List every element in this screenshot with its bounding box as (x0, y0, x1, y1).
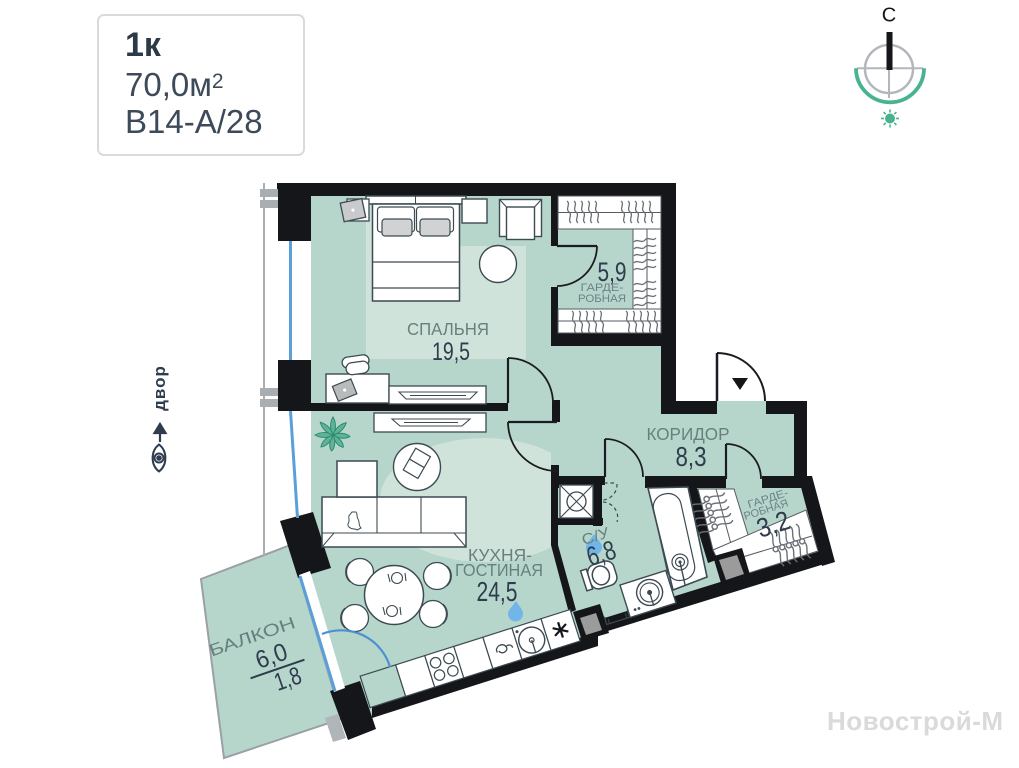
svg-text:СПАЛЬНЯ: СПАЛЬНЯ (407, 319, 489, 339)
svg-text:24,5: 24,5 (477, 576, 518, 607)
svg-text:19,5: 19,5 (432, 338, 470, 366)
svg-text:двор: двор (150, 365, 169, 411)
svg-text:8,3: 8,3 (676, 441, 707, 472)
svg-text:РОБНАЯ: РОБНАЯ (578, 293, 626, 305)
svg-text:С: С (882, 5, 896, 27)
